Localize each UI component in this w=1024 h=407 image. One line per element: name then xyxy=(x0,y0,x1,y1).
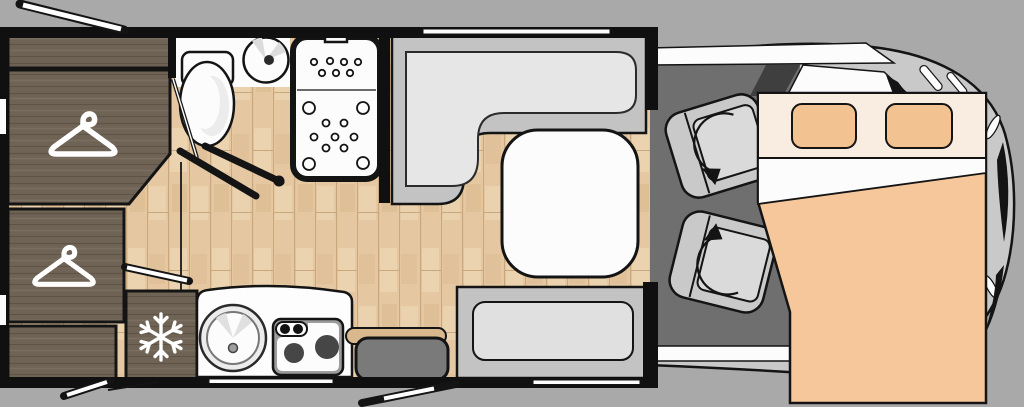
cab-side-bottom-band xyxy=(648,346,798,361)
window-left-upper xyxy=(0,99,6,134)
habitation-section xyxy=(0,4,658,403)
ottoman-seat xyxy=(356,338,448,380)
stove-burner-large xyxy=(315,335,339,359)
kitchen-sink-drain xyxy=(229,344,238,353)
wall-right-bottom xyxy=(643,282,658,388)
stove-knob xyxy=(280,324,290,334)
window-left-lower xyxy=(0,295,6,325)
shower-cubicle xyxy=(293,29,380,179)
window-top xyxy=(423,29,610,34)
bed-pillow-left xyxy=(792,104,856,148)
cabinet xyxy=(8,326,116,382)
bench-seat-cushion xyxy=(473,302,633,360)
dinette-table xyxy=(502,130,638,277)
wall-left xyxy=(0,27,9,388)
toilet-bowl-inner xyxy=(190,75,220,129)
stove-burner-small xyxy=(284,343,304,363)
window-bottom-bench xyxy=(533,380,640,385)
bed-pillow-right xyxy=(886,104,952,148)
motorhome-floor-plan xyxy=(0,0,1024,407)
wardrobe-lower xyxy=(8,209,124,322)
stove-knob xyxy=(293,324,303,334)
door-handle xyxy=(274,176,285,187)
floor-plan-stage xyxy=(0,0,1024,407)
shower-partition-wall xyxy=(379,30,390,203)
drop-down-double-bed xyxy=(758,93,986,403)
wall-right-top xyxy=(645,27,658,110)
wardrobe-upper xyxy=(8,70,170,204)
window-bottom-kitchen xyxy=(209,379,333,384)
cab-section xyxy=(648,43,1014,403)
washbasin-drain xyxy=(264,55,274,65)
two-burner-stove xyxy=(273,319,343,375)
